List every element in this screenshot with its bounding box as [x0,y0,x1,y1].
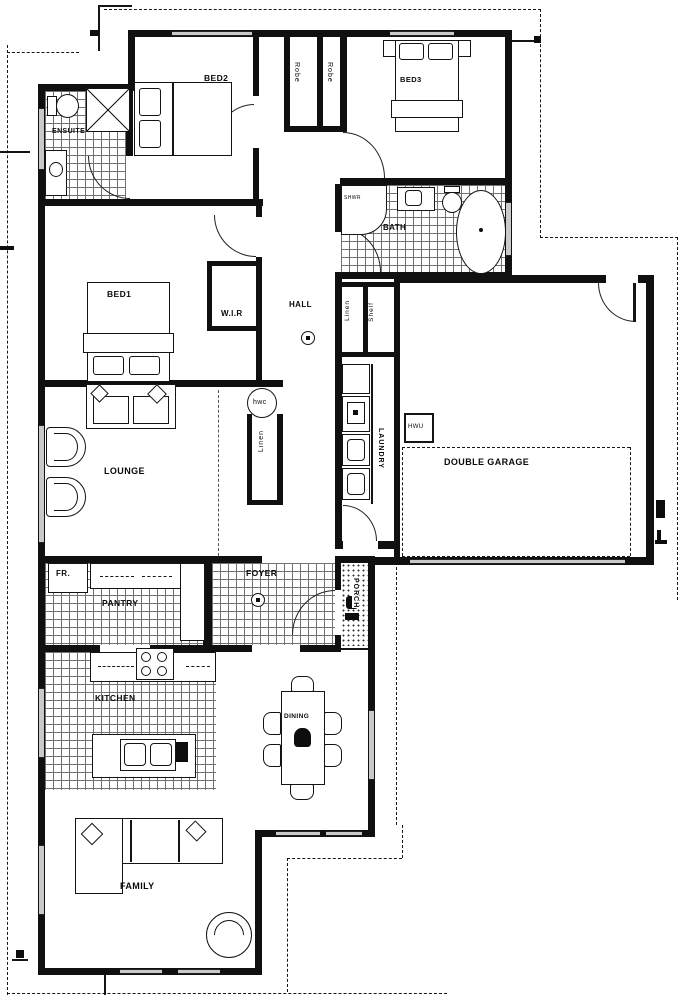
wall [255,830,262,975]
wall [256,257,262,380]
window [39,688,44,758]
room-label-kitchen: KITCHEN [95,694,136,703]
meter-box-icon [656,500,665,518]
garage-door [410,559,625,564]
centerpiece-icon [294,728,311,747]
room-label-garage: DOUBLE GARAGE [444,458,529,467]
wall [300,645,336,652]
wall [38,199,263,206]
room-label-foyer: FOYER [246,569,277,578]
sofa-cushion [133,396,169,424]
bathtub [456,190,506,274]
fixture-label-hwc: hwc [253,399,267,406]
room-label-hall: HALL [289,301,312,309]
window [39,845,44,915]
wall [253,148,259,205]
overhang-line-south2 [287,858,288,992]
window [39,425,44,543]
bench-shelf-line [186,666,210,667]
pillow [428,43,453,60]
wall [247,500,283,505]
wall [378,541,394,549]
wall [284,36,290,132]
toilet-bowl [56,94,79,118]
door-arc-bed3 [343,132,385,178]
boundary-tick [0,151,30,153]
bed3-throw [391,100,463,118]
wall [335,563,341,590]
pillow [399,43,424,60]
burner [141,666,151,676]
armchair-seat [54,483,78,511]
wall [277,414,283,505]
wall [207,261,212,331]
room-label-bed3: BED3 [400,76,422,84]
roof-line-right-upper [540,9,541,238]
tap-icon [655,540,667,544]
window [276,831,320,836]
garage-slab-outline-bottom [402,556,630,557]
shower-icon [86,88,130,132]
boundary-line-right [677,237,678,600]
sink-bowl [124,743,146,766]
room-label-laundry: LAUNDRY [377,428,384,469]
wall [38,645,100,652]
downpipe-icon [16,950,24,958]
wall [341,352,396,357]
bedside-table [458,40,471,57]
pillow [129,356,160,375]
room-label-bed1: BED1 [107,290,131,299]
laundry-cupboard [342,364,370,394]
fridge-box [48,563,88,593]
window [178,969,220,974]
wall [335,541,343,549]
pantry-shelf-line [100,576,134,577]
wall [368,556,375,837]
wall [38,556,210,563]
door-arc-bed1 [214,215,256,257]
dryer-drum [347,473,365,495]
room-label-dining: DINING [284,714,309,721]
entry-marker-icon [345,613,359,620]
garage-slab-outline-top [402,447,630,448]
setout-mark [98,5,132,7]
pillow [139,88,161,116]
tap-dot [353,410,358,415]
overhang-line-east [396,567,397,825]
wall [207,261,262,266]
fixture-label-fridge: FR. [56,570,70,578]
wall [335,272,342,542]
porch-step-line [341,648,369,650]
garage-slab-outline-left [402,447,403,556]
closet-label-robe: Robe [293,62,300,83]
window [369,710,374,780]
fixture-label-hwu: HWU [408,424,424,430]
room-label-wir: W.I.R [221,310,243,318]
wall [341,282,396,287]
boundary-line-left [7,45,8,995]
boundary-tick [0,246,14,250]
room-label-lounge: LOUNGE [104,467,145,476]
garage-slab-outline-right [630,447,631,556]
bed1-throw [83,333,174,353]
boundary-line-bottom [7,993,447,994]
dimension-line [104,975,106,995]
room-label-bath: BATH [383,224,406,232]
smoke-detector-dot [256,598,260,602]
burner [157,666,167,676]
burner [157,652,167,662]
washer-drum [347,439,365,461]
armchair-seat [54,433,78,461]
smoke-detector-dot [306,336,310,340]
closet-label-linen: Linen [258,430,265,452]
setout-peg-icon [90,30,99,36]
bath-basin [405,190,422,206]
laundry-bench-edge [371,364,373,504]
pillow [93,356,124,375]
wall [128,30,135,88]
roof-line-step [540,237,678,238]
closet-label-shelf: Shelf [369,302,376,322]
closet-label-linen: Linen [345,300,352,321]
room-label-bed2: BED2 [204,74,228,83]
openplan-divider [218,390,219,556]
downpipe-icon [12,959,28,961]
dining-chair [290,784,314,800]
window [506,202,511,256]
wall [394,275,606,283]
wall [284,126,346,132]
dining-chair [324,712,342,735]
overhang-line-east2 [402,825,403,858]
burner [141,652,151,662]
door-arc-garage [598,283,636,322]
closet-label-robe: Robe [326,62,333,83]
wall [212,645,252,652]
window [39,108,44,170]
sofa-divider [130,820,132,862]
bathtub-drain [479,228,483,232]
wall [247,414,252,505]
room-label-ensuite: ENSUITE [52,128,85,135]
dining-chair [263,744,281,767]
wall [253,36,259,96]
dining-chair [291,676,314,692]
window [172,31,252,36]
window [120,969,162,974]
dining-chair [263,712,281,735]
room-label-family: FAMILY [120,882,155,891]
basin-bowl [49,162,63,177]
wall [256,205,262,217]
pantry-bench-return [180,563,205,641]
roof-line-top [104,9,541,10]
setout-mark [98,5,100,51]
boundary-corner-topleft [7,52,79,53]
wall [340,178,512,185]
fixture-label-shower: SHWR [344,196,361,201]
sink-bowl [150,743,172,766]
dining-chair [324,744,342,767]
pantry-shelf-line [142,576,172,577]
wall [394,275,400,557]
room-label-pantry: PANTRY [102,599,138,608]
overhang-line-south [287,858,402,859]
wall [317,36,323,132]
pillow [139,120,161,148]
bed2-fold-line [172,83,174,155]
window [326,831,362,836]
door-arc-laundry [343,505,377,541]
door-leaf-garage [633,283,636,322]
sofa-divider [178,820,180,862]
setout-peg-icon [534,36,541,43]
floor-plan: ENSUITE BED2 BED3 Robe Robe BATH SHWR HA… [0,0,690,1000]
faucet-icon [176,742,188,762]
wall [212,326,262,331]
wall [646,275,654,565]
bench-shelf-line [98,666,134,667]
room-label-porch: PORCH [352,578,359,608]
wall [340,36,347,132]
window [390,31,454,36]
wall [212,556,262,563]
